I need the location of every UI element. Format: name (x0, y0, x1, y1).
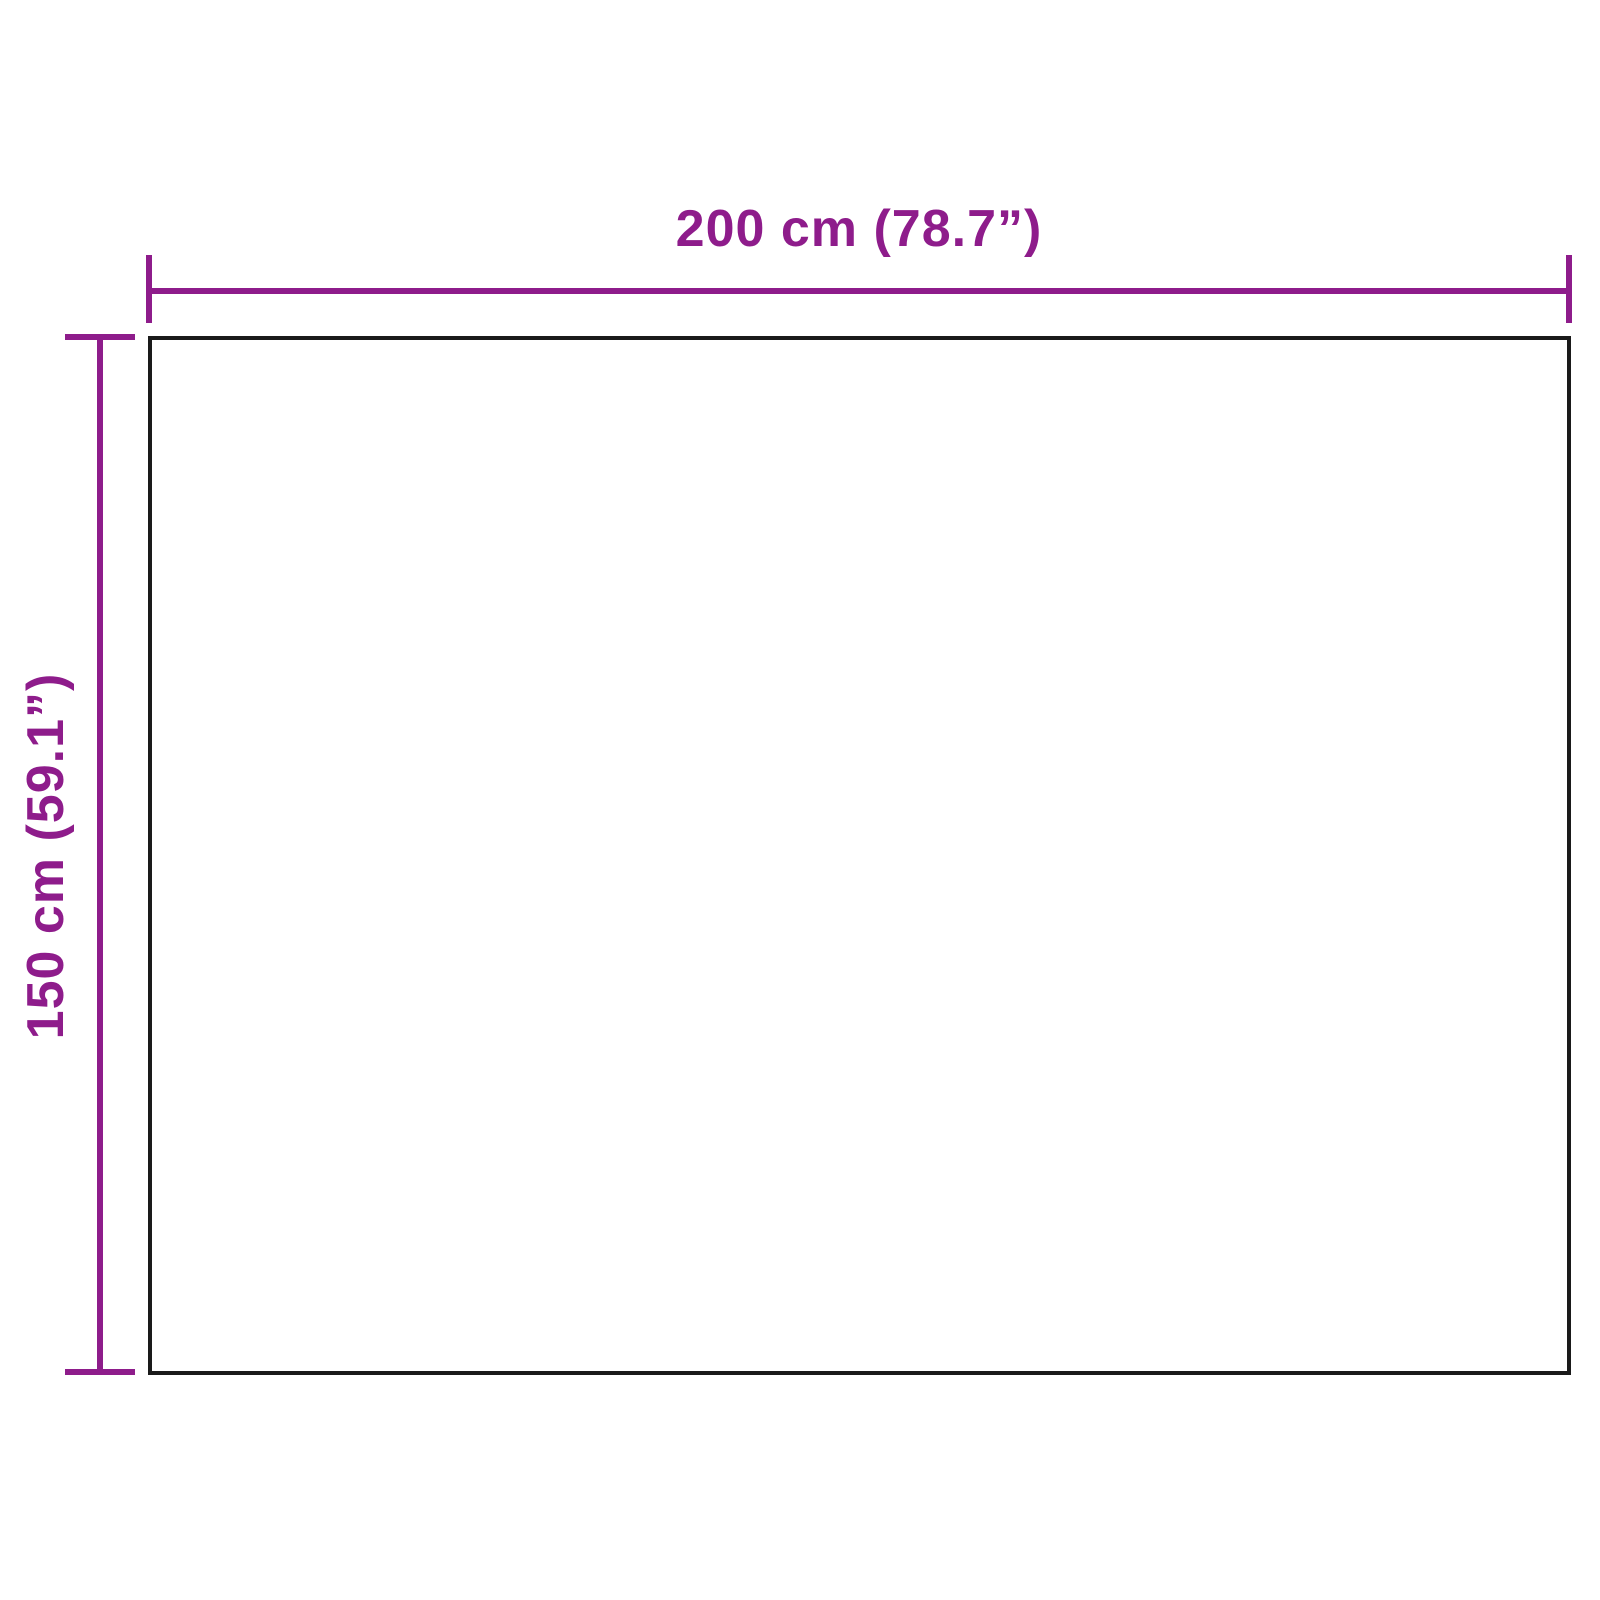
height-dimension-label: 150 cm (59.1”) (18, 673, 74, 1040)
product-outline-rectangle (148, 336, 1571, 1375)
height-dimension-tick-top (65, 334, 135, 340)
width-dimension-tick-right (1566, 255, 1572, 323)
width-dimension-label: 200 cm (78.7”) (148, 201, 1570, 257)
width-dimension-line (146, 288, 1572, 294)
dimension-diagram: 200 cm (78.7”) 150 cm (59.1”) (0, 0, 1600, 1600)
width-dimension-tick-left (146, 255, 152, 323)
height-dimension-line (97, 337, 103, 1374)
height-dimension-tick-bottom (65, 1369, 135, 1375)
